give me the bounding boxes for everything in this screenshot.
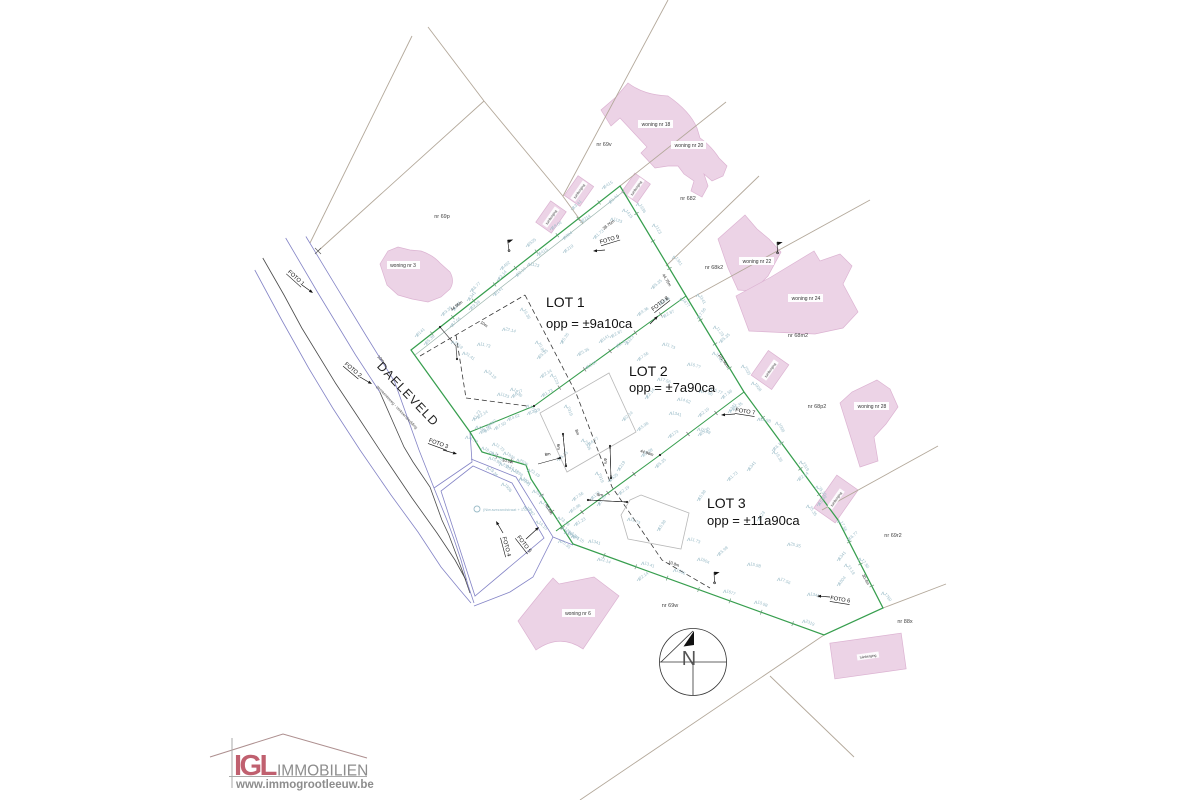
svg-text:nr 682: nr 682 xyxy=(680,196,696,202)
svg-text:woning nr 6: woning nr 6 xyxy=(565,611,591,617)
svg-text:opp = ±9a10ca: opp = ±9a10ca xyxy=(546,316,633,331)
svg-text:woning nr 18: woning nr 18 xyxy=(642,122,671,128)
svg-text:LOT 3: LOT 3 xyxy=(707,495,746,511)
svg-text:woning nr 24: woning nr 24 xyxy=(792,296,821,302)
svg-text:woning nr 20: woning nr 20 xyxy=(675,143,704,149)
svg-text:nr 68m2: nr 68m2 xyxy=(788,333,808,339)
svg-text:woning nr 22: woning nr 22 xyxy=(743,259,772,265)
svg-text:6m: 6m xyxy=(556,444,561,451)
svg-text:www.immogrootleeuw.be: www.immogrootleeuw.be xyxy=(235,779,374,791)
svg-text:4m: 4m xyxy=(603,458,608,465)
svg-text:nr 69r2: nr 69r2 xyxy=(884,533,901,539)
svg-text:nr 69v: nr 69v xyxy=(596,142,612,148)
svg-text:LOT 2: LOT 2 xyxy=(629,363,668,379)
svg-text:opp = ±11a90ca: opp = ±11a90ca xyxy=(707,513,800,528)
svg-text:nr 68k2: nr 68k2 xyxy=(705,265,723,271)
svg-text:nr 69w: nr 69w xyxy=(662,603,679,609)
svg-text:IMMOBILIEN: IMMOBILIEN xyxy=(277,763,368,780)
svg-text:nr 88x: nr 88x xyxy=(897,619,913,625)
svg-text:nr 68p2: nr 68p2 xyxy=(808,404,827,410)
svg-text:woning nr 28: woning nr 28 xyxy=(858,404,887,410)
svg-text:nr 69p: nr 69p xyxy=(434,214,450,220)
svg-text:opp = ±7a90ca: opp = ±7a90ca xyxy=(629,380,716,395)
svg-text:5m: 5m xyxy=(597,492,604,497)
svg-text:LOT 1: LOT 1 xyxy=(546,294,585,310)
svg-text:(Nieuwezandstraat + 1.000): (Nieuwezandstraat + 1.000) xyxy=(483,507,533,512)
svg-text:N: N xyxy=(682,648,696,670)
svg-text:woning nr 3: woning nr 3 xyxy=(390,263,416,269)
svg-text:IGL: IGL xyxy=(234,750,277,782)
